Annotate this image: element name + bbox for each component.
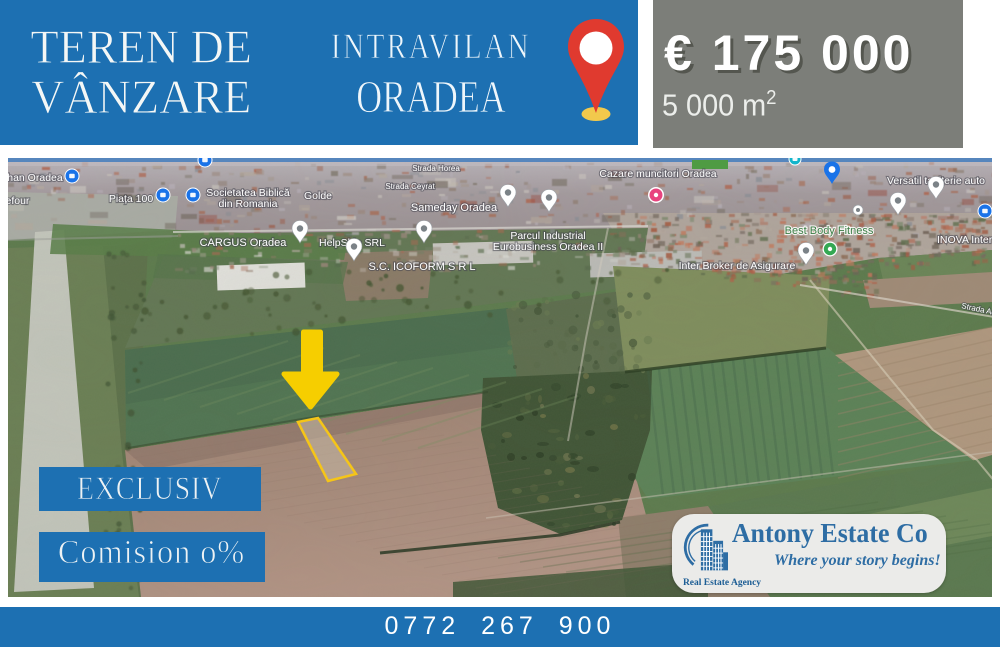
svg-text:refour: refour	[8, 195, 30, 207]
svg-text:Sameday Oradea: Sameday Oradea	[411, 202, 498, 214]
svg-text:S.C. ICOFORM S R L: S.C. ICOFORM S R L	[369, 261, 476, 273]
svg-text:Golde: Golde	[304, 190, 332, 202]
svg-text:Piața 100: Piața 100	[109, 193, 154, 205]
svg-text:din Romania: din Romania	[219, 198, 278, 210]
svg-text:INOVA Interna: INOVA Interna	[937, 234, 992, 246]
svg-text:Eurobusiness Oradea II: Eurobusiness Oradea II	[493, 241, 603, 253]
svg-text:CARGUS Oradea: CARGUS Oradea	[200, 237, 288, 249]
svg-text:Inter Broker de Asigurare: Inter Broker de Asigurare	[679, 260, 796, 272]
svg-text:Strada Horea: Strada Horea	[412, 164, 460, 173]
svg-text:chan Oradea: chan Oradea	[8, 172, 63, 184]
svg-text:Cazare muncitori Oradea: Cazare muncitori Oradea	[599, 168, 716, 180]
svg-text:Strada Ceyrat: Strada Ceyrat	[385, 182, 435, 191]
svg-text:Best Body Fitness: Best Body Fitness	[785, 225, 874, 237]
